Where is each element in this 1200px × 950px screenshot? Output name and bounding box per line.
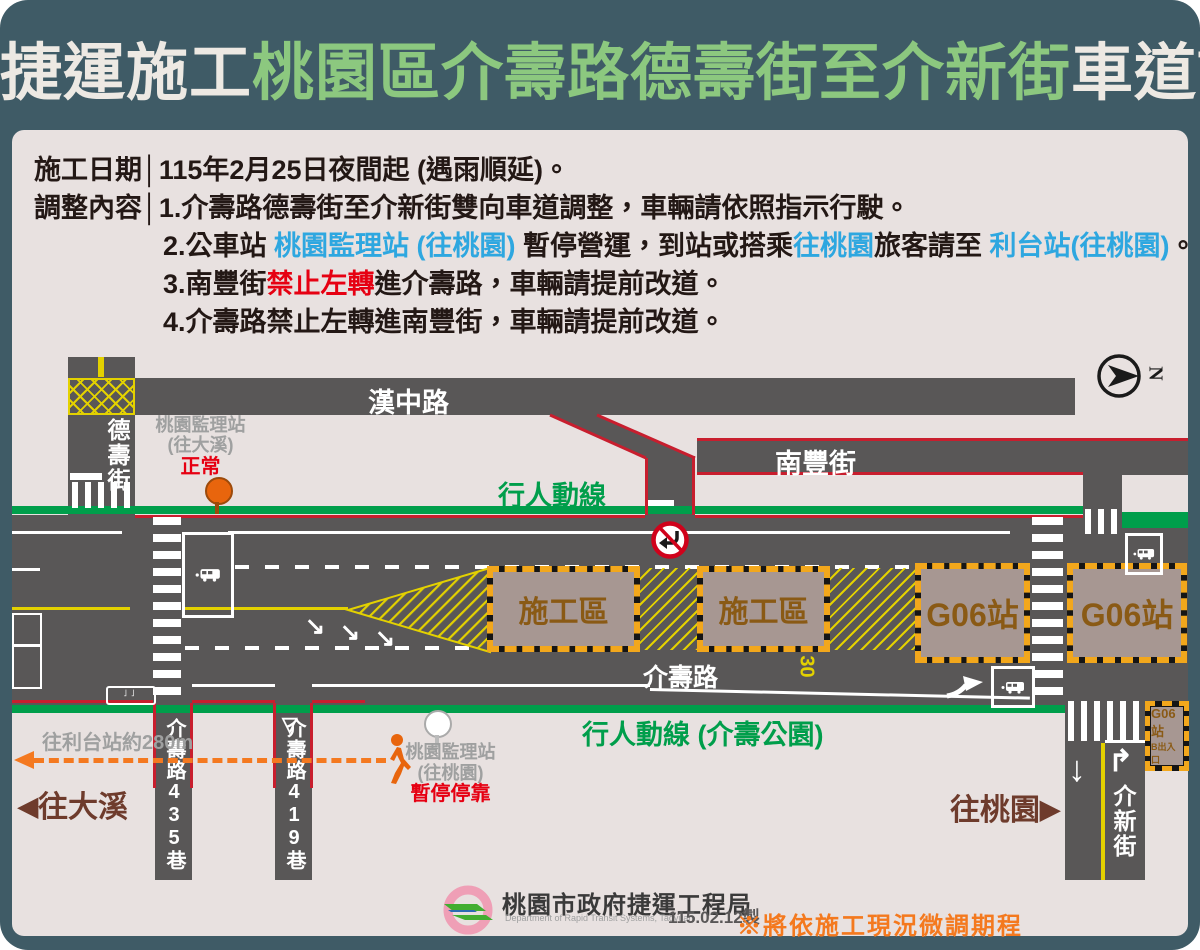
deshou-center-line	[98, 357, 104, 377]
right-turn-arrow-marking: ↱	[1108, 744, 1133, 779]
info-content-line1: 調整內容│1.介壽路德壽街至介新街雙向車道調整，車輛請依照指示行駛。	[34, 186, 910, 225]
g06-station-zone-1: G06站	[915, 563, 1030, 663]
speed-limit-marking: 30	[795, 655, 818, 677]
pedestrian-route-label-top: 行人動線	[498, 474, 606, 513]
drts-logo	[440, 882, 498, 938]
to-daxi-direction: ◀往大溪	[18, 782, 128, 826]
bus-stop-box-east	[991, 666, 1035, 708]
curb-red-stub-right	[692, 458, 695, 515]
construction-zone-border	[487, 566, 640, 652]
station-direction: (往大溪)	[138, 436, 263, 456]
bus-icon	[1133, 548, 1155, 560]
to-litai-label: 往利台站約280m	[42, 726, 193, 755]
item1: 1.介壽路德壽街至介新街雙向車道調整，車輛請依照指示行駛。	[159, 193, 911, 223]
pedestrian-line-top-right	[1122, 512, 1188, 528]
road-label-hanzhong: 漢中路	[368, 381, 449, 420]
compass-icon	[1095, 352, 1143, 400]
to-taoyuan-direction: 往桃園▶	[950, 785, 1060, 829]
center-yellow-a	[12, 607, 130, 610]
divider: │	[142, 155, 159, 185]
station-status-normal: 正常	[138, 456, 263, 478]
road-label-nanfeng: 南豐街	[775, 442, 856, 481]
road-hanzhong	[135, 378, 1075, 415]
curb-red-top-east	[695, 515, 1083, 518]
pedestrian-line-bottom	[12, 705, 1065, 713]
poster: 捷運施工桃園區介壽路德壽街至介新街車道調整 施工日期│115年2月25日夜間起 …	[0, 0, 1200, 950]
lane-line-top-a	[12, 531, 122, 534]
left-arrow-icon: ◀	[18, 791, 38, 821]
crosswalk-jieshou-west	[153, 517, 181, 703]
road-label-deshou: 德壽街	[100, 418, 134, 493]
item2-end: 。	[1170, 231, 1197, 261]
hatch-zone	[830, 568, 915, 650]
to-daxi-label: 往大溪	[38, 791, 128, 824]
bus-stop-pin-suspended	[424, 710, 452, 738]
bus-stop-pin-stem	[215, 502, 219, 514]
item2-dir: 往桃園	[793, 231, 874, 261]
curb-red-stub-left	[645, 458, 648, 515]
jiexin-center-line	[1101, 743, 1105, 880]
bus-icon	[195, 568, 221, 582]
item3-post: 進介壽路，車輛請提前改道。	[375, 269, 726, 299]
item2-station: 桃園監理站 (往桃園)	[274, 231, 515, 261]
info-content-line2: 2.公車站 桃園監理站 (往桃園) 暫停營運，到站或搭乘往桃園旅客請至 利台站(…	[163, 224, 1197, 263]
road-diagonal-connector	[535, 411, 700, 461]
g06-zone-border	[915, 563, 1030, 663]
station-daxi-annotation: 桃園監理站 (往大溪) 正常	[138, 416, 263, 478]
road-nanfeng	[697, 440, 1188, 475]
item2-litai: 利台站(往桃園)	[990, 231, 1170, 261]
item3-noleftturn: 禁止左轉	[267, 269, 375, 299]
curb-red-nanfeng-top	[697, 438, 1188, 441]
to-litai-dashed-arrow	[34, 758, 386, 763]
road-label-jiexin: 介新街	[1106, 784, 1140, 859]
info-content-line4: 4.介壽路禁止左轉進南豐街，車輛請提前改道。	[163, 300, 726, 339]
station-taoyuan-annotation: 桃園監理站 (往桃園) 暫停停靠	[398, 742, 503, 806]
edge-line-low-b	[312, 684, 650, 687]
hatch-zone	[640, 568, 697, 650]
station-name: 桃園監理站	[398, 742, 503, 763]
item4: 4.介壽路禁止左轉進南豐街，車輛請提前改道。	[163, 307, 726, 337]
jiexin-lane-sep	[1105, 740, 1145, 743]
bus-stop-box-north	[1125, 533, 1163, 575]
parking-box-marking	[12, 613, 42, 689]
g06-exit-border	[1145, 701, 1189, 771]
stopline-deshou	[70, 473, 102, 480]
crosswalk-jieshou-east	[1032, 517, 1063, 703]
crosswalk-jiexin	[1068, 701, 1142, 741]
g06-exit-b-zone: G06站 B出入口	[1145, 701, 1189, 771]
item3-pre: 3.南豐街	[163, 269, 267, 299]
no-left-turn-sign	[650, 520, 690, 560]
stopline-stub	[648, 500, 674, 506]
bus-stop-box-west	[182, 532, 234, 618]
station-status-suspended: 暫停停靠	[398, 783, 503, 806]
curb-red-419-left	[273, 703, 276, 788]
lane-seg-a	[12, 568, 40, 571]
construction-zone-border	[697, 566, 830, 652]
compass-n-label: N	[1144, 366, 1167, 380]
agency-name-en: Department of Rapid Transit Systems, Tao…	[505, 913, 693, 923]
curb-red-bottom-b	[192, 700, 275, 703]
crosswalk-nanfeng-leg	[1085, 509, 1120, 534]
scooter-box-marking: ˩˩	[106, 686, 156, 705]
item2-pre: 2.公車站	[163, 231, 274, 261]
g06-zone-border	[1067, 563, 1187, 663]
down-arrow-marking: ↓	[1068, 748, 1086, 790]
to-litai-arrowhead	[14, 751, 34, 769]
divider: │	[142, 193, 159, 223]
title-prefix: 捷運施工	[0, 39, 252, 108]
merge-arrow-icon: ↘	[305, 612, 325, 641]
title-highlight: 桃園區介壽路德壽街至介新街	[252, 39, 1071, 108]
bus-icon	[1001, 681, 1025, 694]
info-content-line3: 3.南豐街禁止左轉進介壽路，車輛請提前改道。	[163, 262, 726, 301]
lane-line-top-b	[228, 531, 1010, 534]
item2-mid1: 暫停營運，到站或搭乘	[516, 231, 794, 261]
curb-red-nanfeng-bottom	[697, 472, 1083, 475]
curb-red-bottom-c	[312, 700, 365, 703]
keep-clear-grid	[68, 378, 135, 415]
right-arrow-icon: ▶	[1040, 794, 1060, 824]
curb-red-top-west	[135, 515, 645, 518]
station-direction: (往桃園)	[398, 763, 503, 784]
construction-zone-2: 施工區	[697, 566, 830, 652]
road-label-jieshou: 介壽路	[643, 658, 718, 694]
date-value: 115年2月25日夜間起 (遇雨順延)。	[159, 155, 570, 185]
content-label: 調整內容	[34, 193, 142, 223]
bus-stop-pin-normal	[205, 477, 233, 505]
item2-mid2: 旅客請至	[874, 231, 990, 261]
title-suffix: 車道調整	[1071, 39, 1200, 108]
info-date-line: 施工日期│115年2月25日夜間起 (遇雨順延)。	[34, 148, 570, 187]
station-name: 桃園監理站	[138, 416, 263, 436]
construction-zone-1: 施工區	[487, 566, 640, 652]
g06-station-zone-2: G06站	[1067, 563, 1187, 663]
road-label-lane419: 介壽路419巷	[280, 718, 309, 871]
turn-arrow-marking	[943, 663, 987, 699]
construction-taper	[345, 563, 493, 655]
pedestrian-route-label-bottom: 行人動線 (介壽公園)	[582, 713, 823, 752]
edge-line-low-a	[192, 684, 275, 687]
to-taoyuan-label: 往桃園	[950, 794, 1040, 827]
schedule-note: ※將依施工現況微調期程	[737, 906, 1023, 941]
date-label: 施工日期	[34, 155, 142, 185]
curb-red-419-right	[310, 703, 313, 788]
page-title: 捷運施工桃園區介壽路德壽街至介新街車道調整	[0, 22, 1200, 112]
